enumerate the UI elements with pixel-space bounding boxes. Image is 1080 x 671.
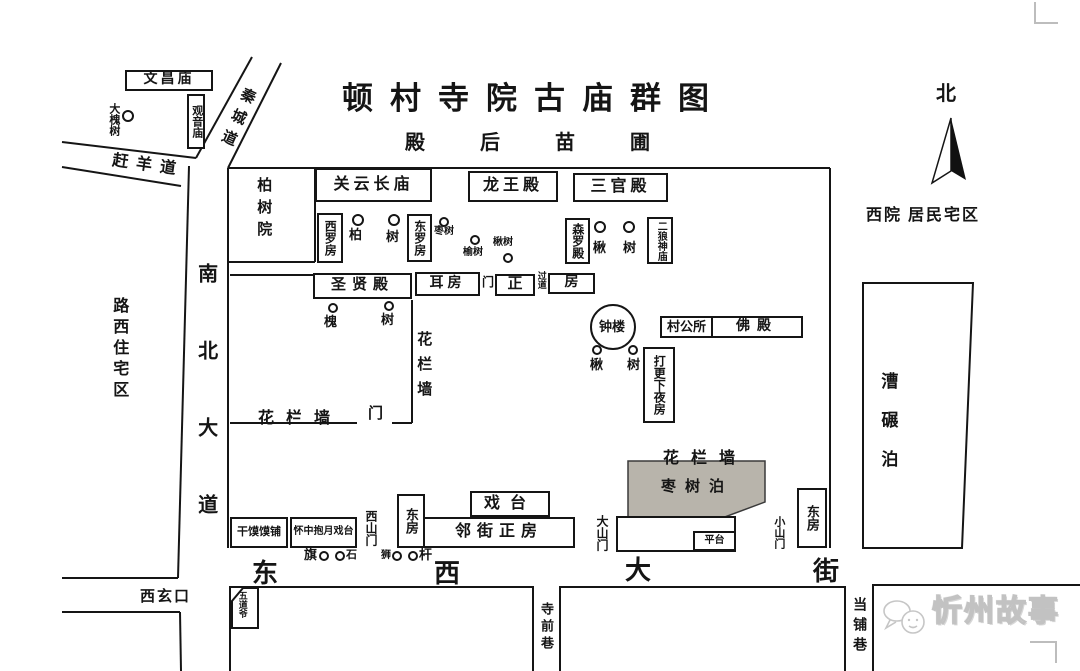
watermark-logo-icon — [884, 601, 924, 633]
east-room-east: 东房 — [797, 488, 827, 548]
street-char-jie: 街 — [813, 558, 839, 586]
tree-label-qiu2: 楸 — [590, 358, 603, 372]
temple-map: 顿村寺院古庙群图 殿后苗圃 北 西院 居民宅区 文昌庙 观音庙 大槐树 秦城道 … — [0, 0, 1080, 671]
stone-label: 石 — [346, 550, 357, 562]
nursery-label: 殿后苗圃 — [405, 133, 705, 155]
road-lines — [62, 57, 281, 671]
street-char-da: 大 — [625, 557, 651, 585]
opera-stage: 戏台 — [470, 491, 550, 517]
main-room-back: 房 — [548, 273, 595, 294]
west-courtyard-label: 西院 居民宅区 — [866, 207, 980, 224]
flower-wall-inner-label: 花栏墙 — [258, 410, 342, 427]
bun-shop: 干馍馍铺 — [230, 517, 288, 548]
inner-gate-label: 门 — [368, 406, 383, 422]
nanbei-road-label: 南北大道 — [194, 263, 216, 571]
flower-wall-top-label: 花栏墙 — [663, 450, 747, 467]
xixuankou-label: 西玄口 — [140, 589, 191, 605]
senluo-hall: 森罗殿 — [565, 218, 590, 264]
pole-label: 杆 — [419, 548, 432, 562]
night-watch-room: 打更下夜房 — [643, 347, 675, 423]
temple-front-lane-label: 寺前巷 — [539, 602, 553, 653]
ear-room: 耳房 — [415, 272, 480, 296]
big-locust-tree-label: 大槐树 — [107, 103, 119, 136]
jujube-pool-label: 枣树泊 — [661, 479, 733, 495]
tree-label-yushu: 榆树 — [463, 248, 483, 259]
small-mountain-gate-label: 小山门 — [772, 516, 784, 549]
cypress-yard-label: 柏树院 — [255, 177, 271, 243]
east-luo-room: 东罗房 — [407, 214, 432, 262]
tree-label-shu: 树 — [386, 230, 399, 244]
street-char-west: 西 — [434, 560, 460, 588]
village-office: 村公所 — [660, 316, 713, 338]
tree-label-qiushu: 楸树 — [493, 238, 513, 249]
great-gate-label: 大山门 — [595, 515, 608, 551]
watermark-text: 忻州故事 — [932, 596, 1060, 628]
moon-stage: 怀中抱月戏台 — [290, 517, 357, 548]
buddha-hall: 佛殿 — [711, 316, 803, 338]
north-arrow-icon — [932, 118, 966, 183]
wudao-shrine-label: 五道爷 — [237, 591, 247, 618]
guanyin-temple: 观音庙 — [187, 94, 205, 149]
flag-label: 旗 — [304, 548, 317, 562]
passage-label: 过道 — [536, 271, 546, 289]
east-room-west: 东房 — [397, 494, 425, 548]
small-gate-label: 门 — [482, 276, 494, 289]
three-officials-hall: 三官殿 — [573, 173, 668, 202]
north-label: 北 — [936, 84, 956, 106]
guanyu-temple: 关云长庙 — [315, 168, 432, 202]
main-room-front: 正 — [495, 274, 535, 296]
tree-label-qiu1: 楸 — [593, 241, 606, 255]
tree-label-huai: 槐 — [324, 315, 337, 329]
west-gate-label: 西山门 — [364, 510, 377, 546]
tree-label-shu1: 树 — [623, 241, 636, 255]
tree-label-zaoshu: 枣树 — [434, 227, 454, 238]
lion-label: 狮 — [381, 551, 391, 562]
west-residential-label: 路西住宅区 — [110, 297, 127, 402]
street-front-rooms: 邻街正房 — [423, 517, 575, 548]
platform: 平台 — [693, 531, 736, 551]
pawnshop-lane-label: 当铺巷 — [851, 597, 866, 657]
tree-label-bai: 柏 — [349, 228, 362, 242]
sage-hall: 圣贤殿 — [313, 273, 412, 299]
tree-label-shu3: 树 — [627, 358, 640, 372]
wenchang-temple: 文昌庙 — [125, 70, 213, 91]
tree-label-shu2: 树 — [381, 313, 394, 327]
corner-marks — [1030, 2, 1058, 663]
street-char-east: 东 — [252, 560, 278, 588]
erlang-shrine: 二狼神庙 — [647, 217, 673, 264]
flower-wall-side-label: 花栏墙 — [415, 331, 431, 406]
bell-tower-label: 钟楼 — [599, 320, 625, 334]
west-luo-room: 西罗房 — [317, 213, 343, 263]
dragon-king-hall: 龙王殿 — [468, 171, 558, 202]
mill-pool-label: 漕碾泊 — [878, 372, 896, 489]
map-title: 顿村寺院古庙群图 — [342, 82, 726, 115]
